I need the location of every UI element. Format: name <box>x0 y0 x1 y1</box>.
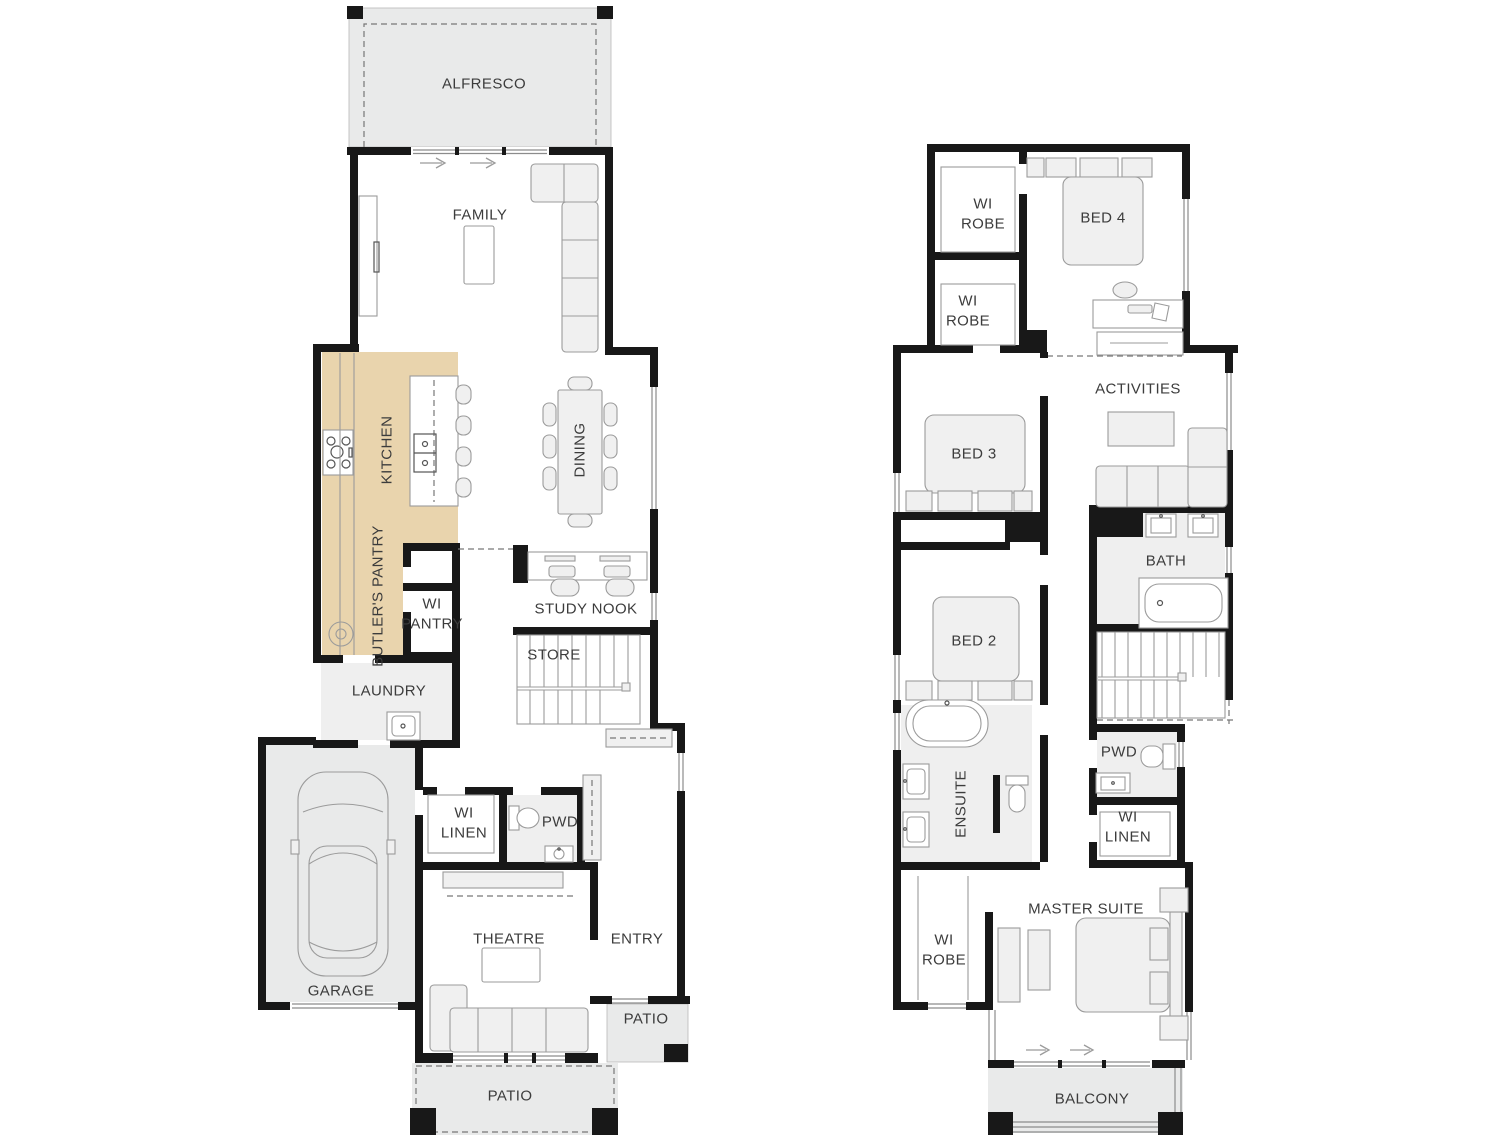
sliding-door <box>411 147 549 155</box>
window <box>1182 199 1190 291</box>
pwd-basin-icon <box>545 846 573 862</box>
room-label-patio-rear: PATIO <box>488 1086 533 1106</box>
laundry-sink-icon <box>387 712 420 740</box>
room-label-bed2: BED 2 <box>951 631 996 651</box>
room-label-wi-robe-master: WI ROBE <box>922 931 966 970</box>
room-label-laundry: LAUNDRY <box>352 681 426 701</box>
room-label-wi-linen-upper: WI LINEN <box>1105 808 1151 847</box>
pwd-toilet-icon <box>1141 744 1175 769</box>
room-label-garage: GARAGE <box>308 981 375 1001</box>
sliding-door-arrow-icon <box>1026 1045 1093 1055</box>
room-label-study-nook: STUDY NOOK <box>535 599 638 619</box>
ensuite-toilet-icon <box>1006 776 1028 812</box>
sliding-door <box>1014 1060 1150 1068</box>
room-label-butlers-pantry: BUTLER'S PANTRY <box>368 525 388 667</box>
room-label-wi-robe-bed4: WI ROBE <box>961 195 1005 234</box>
bathtub-icon <box>1139 578 1228 628</box>
study-desks-icon <box>528 552 647 596</box>
theatre-sofa-icon <box>430 985 588 1052</box>
room-label-pwd: PWD <box>542 812 578 832</box>
desk-icon <box>1093 282 1183 328</box>
room-label-theatre: THEATRE <box>473 929 545 949</box>
window <box>1177 742 1185 767</box>
room-label-alfresco: ALFRESCO <box>442 74 526 94</box>
room-label-master-suite: MASTER SUITE <box>1028 899 1144 919</box>
room-label-activities: ACTIVITIES <box>1095 379 1181 399</box>
room-label-bed3: BED 3 <box>951 444 996 464</box>
family-sofa-icon <box>531 164 598 352</box>
room-label-bed4: BED 4 <box>1080 208 1125 228</box>
tv-unit-icon <box>359 196 379 316</box>
room-label-store: STORE <box>527 645 580 665</box>
pwd-basin-icon <box>1096 773 1130 793</box>
room-label-wi-pantry: WI PANTRY <box>401 595 463 634</box>
room-label-ensuite: ENSUITE <box>951 770 971 838</box>
cooktop-icon <box>323 430 353 475</box>
island-bench <box>410 376 458 506</box>
dresser-icon <box>1097 332 1183 355</box>
floor-plan-canvas: ALFRESCO FAMILY KITCHEN DINING BUTLER'S … <box>0 0 1498 1142</box>
theatre-media-unit <box>443 872 577 896</box>
coffee-table-icon <box>464 226 494 284</box>
floor-plan-drawing <box>0 0 1498 1142</box>
upper-stairs <box>1097 632 1225 718</box>
room-label-entry: ENTRY <box>611 929 664 949</box>
ground-floor-plan <box>258 6 690 1135</box>
pwd-toilet-icon <box>509 806 539 830</box>
sliding-door-arrow-icon <box>420 158 495 168</box>
room-label-wi-linen: WI LINEN <box>441 804 487 843</box>
room-label-family: FAMILY <box>453 205 508 225</box>
theatre-table-icon <box>482 948 540 982</box>
freestanding-bath-icon <box>906 700 988 747</box>
toilet-nook-wall <box>993 775 1000 833</box>
upper-floor-plan <box>893 144 1238 1135</box>
room-label-dining: DINING <box>570 423 590 478</box>
activities-table-icon <box>1108 412 1174 446</box>
room-label-pwd-upper: PWD <box>1101 742 1137 762</box>
room-label-kitchen: KITCHEN <box>377 416 397 485</box>
room-label-bath: BATH <box>1146 551 1187 571</box>
room-label-wi-robe-hall: WI ROBE <box>946 292 990 331</box>
room-label-balcony: BALCONY <box>1055 1089 1130 1109</box>
room-label-patio-side: PATIO <box>624 1009 669 1029</box>
entry-cabinet <box>583 775 601 860</box>
